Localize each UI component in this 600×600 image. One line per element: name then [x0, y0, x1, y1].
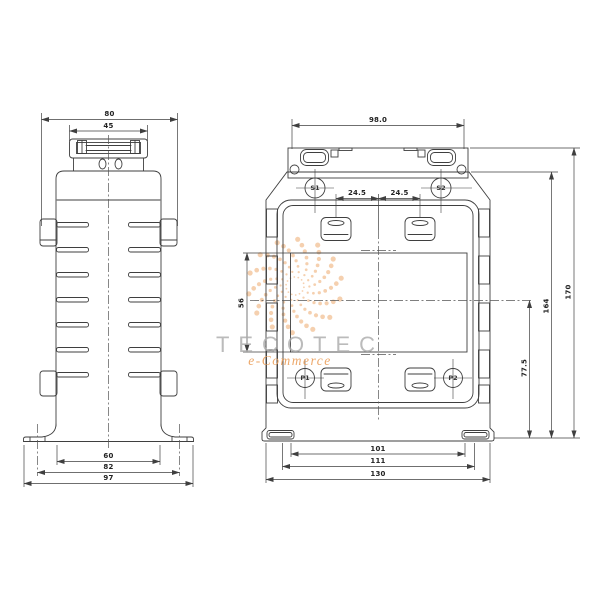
technical-drawing: [0, 0, 600, 600]
drawing-canvas: 80 45 60 82 97 98.0 24.5 24.5 101 111 13…: [0, 0, 600, 600]
watermark-swirl-icon: [246, 237, 344, 336]
terminal-label-p2: P2: [448, 375, 457, 382]
front-view-centerlines: [250, 230, 533, 422]
dim-front-center-to-base: 77.5: [521, 359, 528, 377]
bracket-hole-icon: [457, 165, 466, 174]
foot-slots: [267, 431, 489, 440]
dim-front-overall-height: 170: [566, 284, 573, 299]
watermark-subtitle: e-Commerce: [248, 353, 331, 369]
dim-side-overall-width: 80: [104, 111, 114, 118]
secondary-terminals: [321, 218, 435, 241]
dim-front-terminal-offset-right: 24.5: [390, 190, 408, 197]
front-body: [262, 172, 494, 441]
dim-front-body-height: 164: [543, 298, 550, 313]
dim-side-cap-width: 45: [103, 123, 113, 130]
primary-terminals: [321, 368, 435, 391]
terminal-label-s1: S1: [310, 185, 319, 192]
bracket-hole-icon: [290, 165, 299, 174]
front-view-outline: [262, 148, 494, 441]
side-view-centerlines: [38, 135, 180, 476]
dim-front-window-height: 56: [239, 297, 246, 307]
dim-front-base-width: 130: [370, 471, 385, 478]
terminal-label-s2: S2: [436, 185, 445, 192]
dim-side-flange-width: 97: [103, 475, 113, 482]
terminal-label-p1: P1: [300, 375, 309, 382]
dim-front-slot-inner-span: 101: [370, 446, 385, 453]
dim-side-base-width: 60: [103, 453, 113, 460]
dim-front-bracket-width: 98.0: [369, 117, 387, 124]
dim-front-terminal-offset-left: 24.5: [348, 190, 366, 197]
dim-side-slot-spacing: 82: [103, 464, 113, 471]
dim-front-slot-outer-span: 111: [370, 458, 385, 465]
